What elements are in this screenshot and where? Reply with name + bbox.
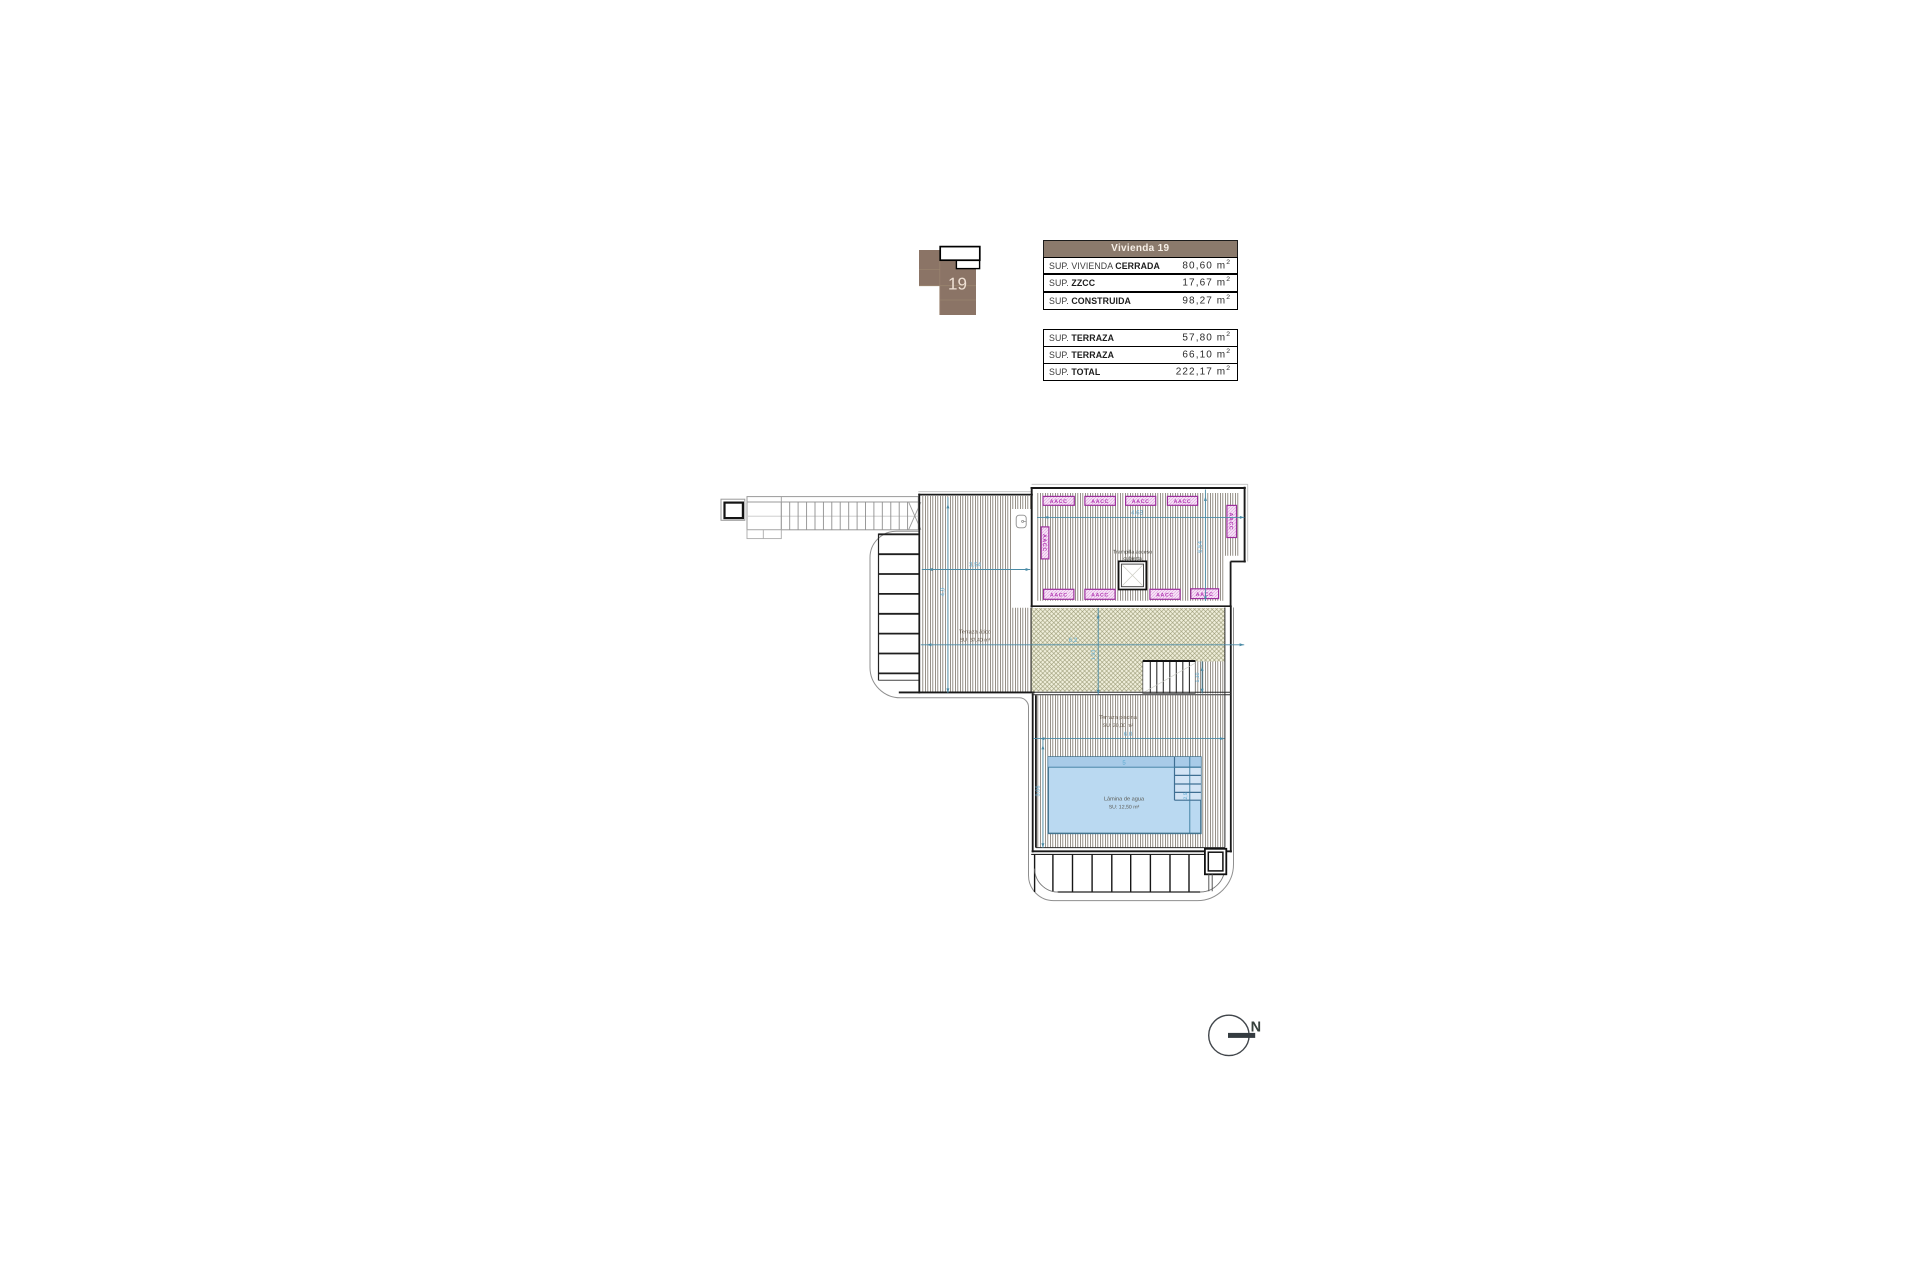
svg-text:3,06: 3,06: [1036, 786, 1042, 797]
svg-text:Lámina de agua: Lámina de agua: [1104, 796, 1145, 803]
svg-text:Trampilla acceso: Trampilla acceso: [1113, 550, 1152, 556]
svg-text:4,9: 4,9: [940, 587, 947, 596]
svg-text:AACC: AACC: [1050, 592, 1068, 598]
svg-text:AACC: AACC: [1132, 499, 1150, 505]
svg-text:6,2: 6,2: [1069, 637, 1078, 644]
svg-text:SU: 37,40 m²: SU: 37,40 m²: [960, 637, 991, 643]
svg-text:cubierta: cubierta: [1123, 556, 1142, 562]
svg-text:3,54: 3,54: [969, 562, 982, 569]
svg-text:AACC: AACC: [1091, 499, 1109, 505]
svg-text:AACC: AACC: [1156, 592, 1174, 598]
svg-text:2,5: 2,5: [1183, 792, 1189, 799]
svg-text:6,0: 6,0: [1124, 731, 1133, 738]
svg-text:6,54: 6,54: [1197, 540, 1204, 553]
svg-text:AACC: AACC: [1041, 534, 1047, 552]
svg-text:1,10: 1,10: [1195, 672, 1201, 682]
svg-text:4,63: 4,63: [1131, 510, 1144, 517]
svg-text:SU: 20,00 m²: SU: 20,00 m²: [1103, 723, 1134, 729]
svg-text:SU: 12,50 m²: SU: 12,50 m²: [1109, 805, 1140, 811]
svg-text:N: N: [1251, 1019, 1261, 1035]
svg-text:AACC: AACC: [1174, 499, 1192, 505]
svg-text:AACC: AACC: [1091, 592, 1109, 598]
svg-text:AACC: AACC: [1050, 499, 1068, 505]
svg-text:AACC: AACC: [1228, 513, 1234, 531]
svg-text:1,93: 1,93: [1091, 650, 1097, 661]
svg-text:Terraza piscina: Terraza piscina: [1099, 714, 1138, 721]
svg-text:Terraza ático: Terraza ático: [959, 629, 991, 636]
